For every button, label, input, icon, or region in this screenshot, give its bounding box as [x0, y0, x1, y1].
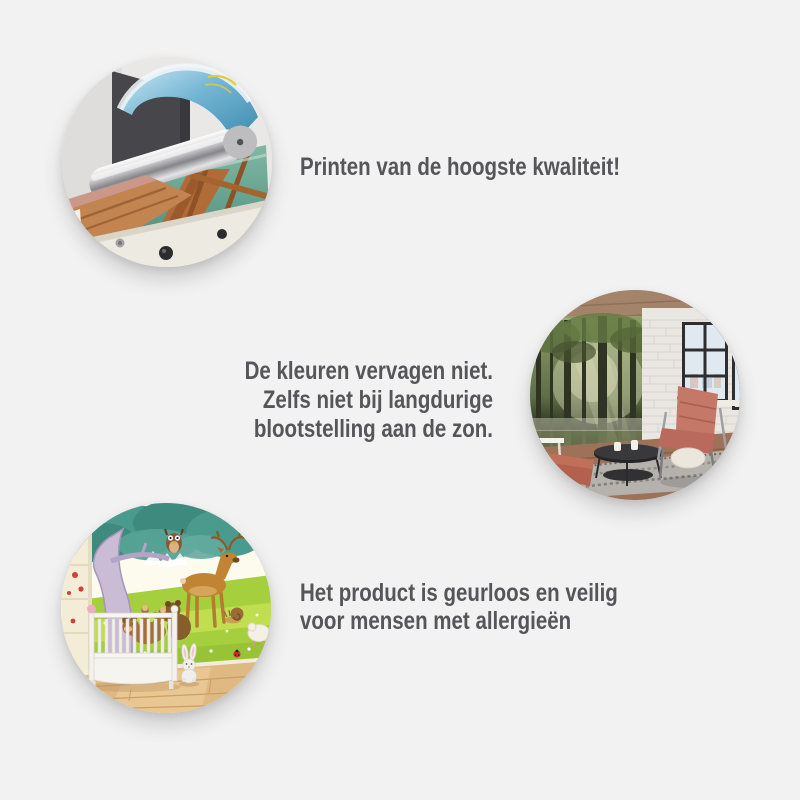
forest-wall-mural — [530, 313, 658, 452]
caption-line: De kleuren vervagen niet. — [236, 357, 493, 386]
print-machine-photo — [62, 57, 272, 267]
caption-line: Het product is geurloos en veilig — [300, 579, 618, 607]
caption-line: voor mensen met allergieën — [300, 607, 618, 635]
nursery-mural-photo — [61, 503, 271, 713]
feature-text-odorless-safe: Het product is geurloos en veilig voor m… — [300, 579, 618, 635]
caption-line: Zelfs niet bij langdurige — [236, 386, 493, 415]
feature-text-print-quality: Printen van de hoogste kwaliteit! — [300, 153, 620, 182]
product-benefits-graphic: Printen van de hoogste kwaliteit! — [0, 0, 800, 800]
nursery-illustration — [61, 503, 271, 713]
caption-line: blootstelling aan de zon. — [236, 415, 493, 444]
caption-line: Printen van de hoogste kwaliteit! — [300, 153, 620, 182]
wardrobe — [61, 531, 92, 675]
interior-forest-mural-photo — [530, 290, 740, 500]
feature-text-no-fading: De kleuren vervagen niet. Zelfs niet bij… — [236, 357, 493, 444]
interior-illustration — [530, 290, 740, 500]
print-machine-illustration — [62, 57, 272, 267]
